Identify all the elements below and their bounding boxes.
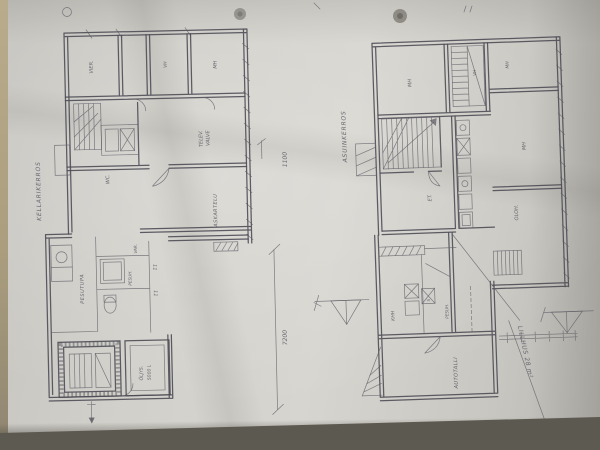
dimension-label-width: 7200: [282, 330, 289, 346]
room-label-wc: WC.: [105, 174, 111, 184]
room-label-tv-line2: VALVE: [205, 129, 211, 145]
left-plan-walls: [52, 26, 253, 247]
north-arrow-icon: [314, 294, 370, 326]
north-arrow-icon: [540, 306, 594, 334]
photo-of-floor-plan-sketch: VIER. VH MH TELEV. VALVE WC. ASKARTELU P…: [0, 0, 600, 450]
room-label-bedroom1: MH: [407, 79, 413, 88]
room-label-living: OLOH.: [514, 204, 521, 220]
right-plan-caption: ASUINKERROS: [340, 110, 349, 163]
room-label-tank-line2: 5000 L: [146, 364, 152, 380]
room-label-sauna: S: [426, 298, 431, 301]
room-label-bedroom: MH: [213, 60, 219, 68]
left-plan-sauna-room: [58, 341, 121, 397]
room-label-garage: AUTOTALLI: [453, 357, 460, 390]
room-label-storage: VAR.: [133, 244, 138, 254]
entrance-arrow-icon: [87, 402, 95, 424]
tick-mark: 11: [152, 290, 158, 297]
left-plan-staircase: [74, 102, 139, 155]
room-label-entry: ET.: [427, 194, 433, 201]
room-label-utility: KHH: [390, 310, 396, 321]
room-label-bedroom2: MH: [505, 61, 511, 69]
dimension-line-height: [257, 139, 265, 159]
right-plan-staircase: [382, 117, 442, 169]
left-floor-plan: VIER. VH MH TELEV. VALVE WC. ASKARTELU P…: [32, 25, 295, 425]
room-label-closet: VH: [472, 69, 477, 76]
room-label-wash: PESUH.: [127, 270, 132, 285]
right-plan-porch: [355, 143, 376, 176]
note-pointer-line: [453, 232, 520, 322]
room-label-wash: PESUH.: [444, 303, 450, 319]
room-label-guest: VIER.: [89, 60, 95, 73]
room-label-tv-line1: TELEV.: [198, 130, 204, 147]
right-floor-plan: LILLHUS 28 m² MH VH MH MH OLOH. ET. KHH …: [305, 36, 597, 427]
room-label-bedroom3: MH: [521, 142, 527, 151]
room-label-tank-line1: ÖLJYS.: [138, 366, 145, 381]
room-label-closet: VH: [163, 61, 169, 68]
handwritten-note: LILLHUS 28 m²: [516, 325, 534, 379]
tick-mark: 11: [151, 264, 157, 271]
dimension-label-height: 1100: [282, 152, 289, 168]
hole-punch-marks: [63, 3, 473, 23]
dimension-line-width: [269, 244, 284, 414]
room-label-hobby: ASKARTELU: [213, 194, 220, 228]
room-label-laundry: PESUTUPA: [79, 274, 86, 304]
floor-plan-drawing: VIER. VH MH TELEV. VALVE WC. ASKARTELU P…: [0, 0, 600, 450]
left-plan-caption: KELLARIKERROS: [35, 161, 43, 221]
